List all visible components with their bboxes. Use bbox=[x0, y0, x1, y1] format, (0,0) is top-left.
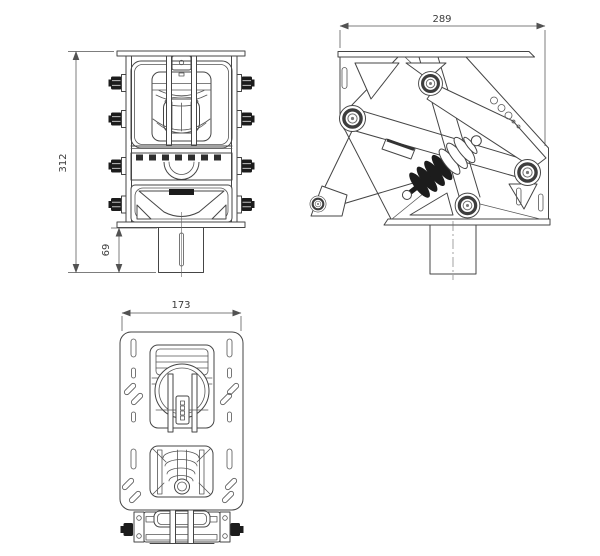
dimension-overall-height: 312 bbox=[58, 52, 156, 273]
dimension-label-shaft-height: 69 bbox=[101, 244, 112, 257]
spring-bolt bbox=[175, 479, 190, 494]
dimension-label-overall-height: 312 bbox=[58, 153, 69, 172]
side-view bbox=[310, 52, 550, 281]
top-view bbox=[120, 332, 244, 544]
bracket-notch bbox=[179, 73, 184, 76]
side-base-plate bbox=[384, 219, 550, 225]
side-top-plate bbox=[338, 52, 535, 58]
drawing-sheet: { "drawing": { "dimensions": { "overall_… bbox=[0, 0, 600, 556]
stop-tab bbox=[382, 139, 415, 159]
front-view bbox=[109, 51, 255, 277]
dimension-label-side-width: 289 bbox=[432, 14, 451, 25]
dimension-label-top-width: 173 bbox=[171, 300, 190, 311]
frame-slot-right2 bbox=[539, 194, 544, 211]
rod-top-left bbox=[168, 374, 173, 432]
base-flange bbox=[117, 222, 245, 228]
engineering-drawing-canvas: 312 69 289 173 bbox=[0, 0, 600, 556]
spring-front bbox=[153, 97, 210, 133]
rod-top-right bbox=[192, 374, 197, 432]
dimension-top-width: 173 bbox=[122, 300, 241, 331]
dimension-shaft-height: 69 bbox=[101, 228, 157, 273]
guide-rod-left bbox=[167, 56, 172, 145]
top-mount-plate bbox=[117, 51, 245, 56]
frame-slot-left bbox=[342, 68, 347, 89]
guide-rod-right bbox=[192, 56, 197, 145]
side-base-shaft bbox=[430, 221, 476, 280]
top-bracket bbox=[172, 56, 191, 70]
bottom-assembly bbox=[121, 510, 244, 544]
